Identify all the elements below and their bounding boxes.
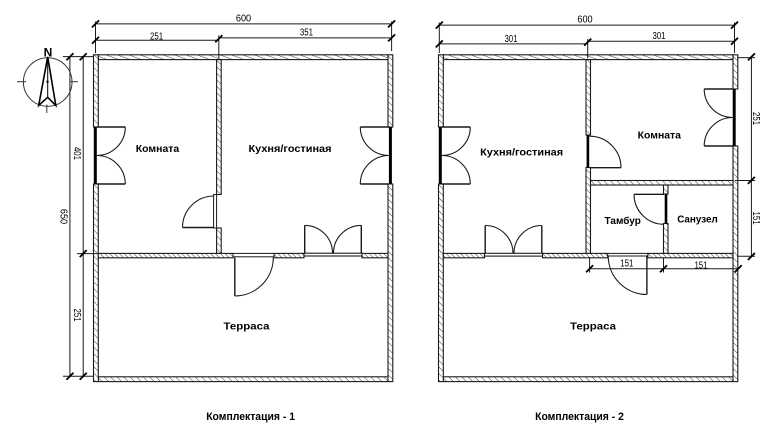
svg-text:Комната: Комната xyxy=(638,130,682,142)
svg-text:151: 151 xyxy=(620,259,633,270)
svg-text:251: 251 xyxy=(750,112,761,125)
svg-text:351: 351 xyxy=(300,28,313,39)
svg-text:Комплектация - 2: Комплектация - 2 xyxy=(535,411,624,423)
svg-text:Санузел: Санузел xyxy=(677,214,718,226)
svg-text:650: 650 xyxy=(58,209,69,225)
svg-text:151: 151 xyxy=(750,212,761,225)
svg-text:301: 301 xyxy=(652,31,665,42)
svg-text:151: 151 xyxy=(694,260,707,271)
svg-text:Комната: Комната xyxy=(136,143,180,155)
svg-text:Кухня/гостиная: Кухня/гостиная xyxy=(480,146,563,158)
svg-text:Комплектация - 1: Комплектация - 1 xyxy=(206,411,295,423)
svg-text:Кухня/гостиная: Кухня/гостиная xyxy=(249,143,332,155)
svg-text:N: N xyxy=(44,46,53,60)
svg-text:251: 251 xyxy=(71,308,82,321)
svg-text:401: 401 xyxy=(71,147,82,160)
svg-text:600: 600 xyxy=(577,15,593,26)
svg-text:301: 301 xyxy=(504,34,517,45)
svg-text:Терраса: Терраса xyxy=(570,320,616,332)
svg-text:Терраса: Терраса xyxy=(224,320,270,332)
svg-text:600: 600 xyxy=(236,14,252,25)
svg-text:Тамбур: Тамбур xyxy=(605,215,641,227)
svg-text:251: 251 xyxy=(150,32,163,43)
